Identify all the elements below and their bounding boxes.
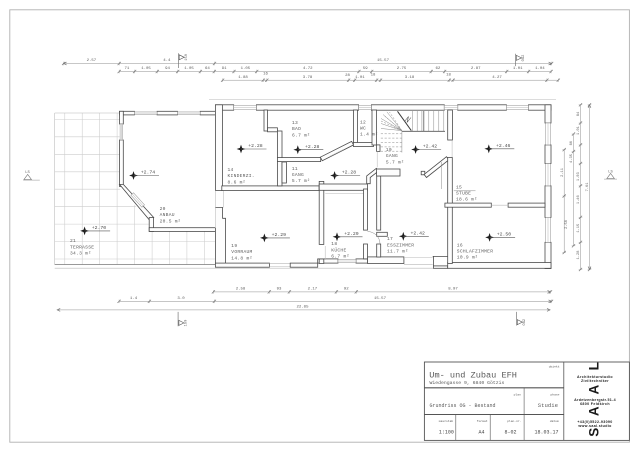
svg-text:OG2: OG2 <box>523 319 527 326</box>
svg-text:84: 84 <box>577 111 581 116</box>
svg-text:1.28: 1.28 <box>577 251 581 260</box>
svg-text:TERRASSE: TERRASSE <box>70 244 94 250</box>
svg-text:1.05: 1.05 <box>184 67 194 71</box>
svg-text:20: 20 <box>160 206 166 212</box>
svg-text:A: A <box>587 384 602 394</box>
svg-text:VORRAUM: VORRAUM <box>231 249 252 255</box>
svg-text:A: A <box>587 406 602 416</box>
svg-text:L: L <box>587 362 602 370</box>
svg-text:10.9 m²: 10.9 m² <box>457 255 478 261</box>
svg-text:6800 Feldkirch: 6800 Feldkirch <box>580 402 610 406</box>
svg-text:GANG: GANG <box>292 172 304 178</box>
svg-text:Um- und Zubau EFH: Um- und Zubau EFH <box>429 370 517 380</box>
svg-text:2.75: 2.75 <box>397 67 407 71</box>
svg-text:1.05: 1.05 <box>241 67 251 71</box>
svg-text:1:100: 1:100 <box>439 429 454 435</box>
svg-text:+2.46: +2.46 <box>496 143 511 149</box>
svg-text:SCHLAFZIMMER: SCHLAFZIMMER <box>457 249 493 255</box>
svg-text:1.01: 1.01 <box>355 76 365 80</box>
svg-text:1.05: 1.05 <box>141 67 151 71</box>
svg-text:+2.74: +2.74 <box>141 170 156 176</box>
svg-text:+2.28: +2.28 <box>305 144 320 150</box>
svg-text:www.saal.studio: www.saal.studio <box>577 424 612 428</box>
svg-text:format: format <box>477 419 488 423</box>
svg-text:4.4: 4.4 <box>163 59 171 63</box>
svg-text:1.4 m²: 1.4 m² <box>360 132 378 138</box>
svg-text:62: 62 <box>435 67 440 71</box>
svg-text:18.03.17: 18.03.17 <box>534 429 558 435</box>
svg-text:34.3 m²: 34.3 m² <box>70 251 91 257</box>
svg-text:ESSZIMMER: ESSZIMMER <box>387 242 414 248</box>
svg-text:+2.28: +2.28 <box>342 170 357 176</box>
svg-text:+2.29: +2.29 <box>272 232 287 238</box>
svg-text:10: 10 <box>386 147 392 153</box>
svg-text:plan: plan <box>514 393 521 397</box>
svg-text:2.57: 2.57 <box>87 59 97 63</box>
svg-text:+2.42: +2.42 <box>411 231 426 237</box>
svg-text:2.11: 2.11 <box>561 167 565 177</box>
svg-text:KINDERZI.: KINDERZI. <box>228 173 255 179</box>
svg-text:datum: datum <box>550 419 559 423</box>
svg-text:+2.70: +2.70 <box>92 225 107 231</box>
svg-text:13: 13 <box>292 120 298 126</box>
svg-text:KÜCHE: KÜCHE <box>331 246 346 253</box>
svg-text:18: 18 <box>446 73 451 77</box>
svg-text:17: 17 <box>387 236 393 242</box>
svg-text:18.6 m²: 18.6 m² <box>456 197 477 203</box>
svg-text:+2.50: +2.50 <box>497 232 512 238</box>
svg-text:3.78: 3.78 <box>303 76 313 80</box>
svg-text:3.0: 3.0 <box>177 297 185 301</box>
svg-text:92: 92 <box>344 288 349 292</box>
svg-text:86: 86 <box>570 141 574 145</box>
svg-text:71: 71 <box>124 67 129 71</box>
svg-text:93: 93 <box>277 288 282 292</box>
svg-text:Ziviltechniker: Ziviltechniker <box>581 379 609 383</box>
svg-text:11.7 m²: 11.7 m² <box>387 249 408 255</box>
svg-text:11: 11 <box>292 166 298 172</box>
svg-text:59: 59 <box>363 67 368 71</box>
svg-text:22.85: 22.85 <box>296 306 309 310</box>
svg-text:1.4: 1.4 <box>130 297 138 301</box>
svg-text:2.17: 2.17 <box>308 288 318 292</box>
svg-text:150: 150 <box>185 320 189 327</box>
svg-text:4.27: 4.27 <box>492 76 502 80</box>
svg-text:1.15: 1.15 <box>577 224 581 233</box>
svg-text:objekt: objekt <box>549 365 560 369</box>
svg-text:16: 16 <box>263 73 268 77</box>
svg-text:28: 28 <box>345 74 350 78</box>
svg-text:WC: WC <box>360 126 366 132</box>
svg-text:16: 16 <box>457 242 463 248</box>
svg-text:15: 15 <box>456 184 462 190</box>
svg-text:15.57: 15.57 <box>374 297 387 301</box>
svg-text:OG2: OG2 <box>522 55 526 62</box>
svg-text:+2.42: +2.42 <box>423 144 438 150</box>
svg-text:1.01: 1.01 <box>577 125 581 135</box>
svg-text:A4: A4 <box>478 429 484 435</box>
svg-text:14: 14 <box>228 167 234 173</box>
svg-text:maszstab: maszstab <box>439 419 454 423</box>
svg-text:Wiedengasse 9, 6840 Götzis: Wiedengasse 9, 6840 Götzis <box>430 380 505 386</box>
svg-text:2.56: 2.56 <box>565 220 569 229</box>
svg-text:91: 91 <box>222 67 227 71</box>
svg-text:94: 94 <box>165 67 170 71</box>
svg-text:1.01: 1.01 <box>513 67 523 71</box>
svg-text:4.72: 4.72 <box>303 67 313 71</box>
svg-text:18: 18 <box>331 241 337 247</box>
svg-text:7.61: 7.61 <box>586 182 590 192</box>
svg-text:Studie: Studie <box>538 402 558 409</box>
svg-text:8.6 m²: 8.6 m² <box>228 179 246 185</box>
svg-text:2.58: 2.58 <box>236 288 246 292</box>
svg-text:1.46: 1.46 <box>577 195 581 204</box>
svg-text:12: 12 <box>360 119 366 125</box>
svg-text:8.97: 8.97 <box>448 288 458 292</box>
svg-text:GANG: GANG <box>386 153 398 159</box>
svg-text:1.03: 1.03 <box>577 172 581 181</box>
svg-text:S: S <box>587 428 602 437</box>
svg-text:3.18: 3.18 <box>405 76 415 80</box>
svg-text:6.7 m²: 6.7 m² <box>292 132 310 138</box>
svg-text:19: 19 <box>231 243 237 249</box>
svg-text:STUBE: STUBE <box>456 191 471 197</box>
svg-text:+2.29: +2.29 <box>344 231 359 237</box>
svg-text:plan-nr.: plan-nr. <box>507 419 522 423</box>
svg-text:ANBAU: ANBAU <box>160 212 175 218</box>
svg-text:8-02: 8-02 <box>504 429 516 435</box>
svg-text:2.87: 2.87 <box>471 67 481 71</box>
svg-text:+2.28: +2.28 <box>248 143 263 149</box>
svg-text:phase: phase <box>550 393 559 397</box>
svg-text:20.5 m²: 20.5 m² <box>160 218 181 224</box>
svg-text:15.57: 15.57 <box>377 59 390 63</box>
svg-text:4.35: 4.35 <box>570 154 574 163</box>
svg-text:5.7 m²: 5.7 m² <box>386 159 404 165</box>
svg-text:6.7 m²: 6.7 m² <box>331 254 349 260</box>
svg-text:21: 21 <box>70 238 76 244</box>
svg-text:5.7 m²: 5.7 m² <box>292 178 310 184</box>
svg-text:150: 150 <box>185 54 189 61</box>
svg-text:18: 18 <box>371 73 376 77</box>
svg-text:64: 64 <box>205 67 210 71</box>
svg-text:BAD: BAD <box>292 126 301 132</box>
svg-text:14.8 m²: 14.8 m² <box>231 255 252 261</box>
svg-text:Grundriss OG - Bestand: Grundriss OG - Bestand <box>430 403 496 409</box>
svg-text:1.04: 1.04 <box>535 67 545 71</box>
svg-text:1.88: 1.88 <box>238 76 248 80</box>
